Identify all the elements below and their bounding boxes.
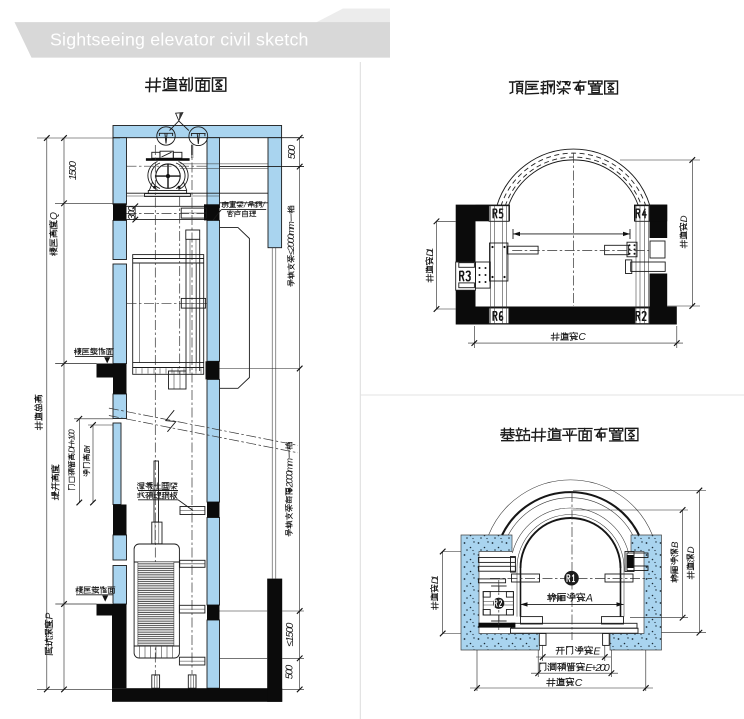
svg-text:Sightseeing elevator civil ske: Sightseeing elevator civil sketch [50, 30, 309, 50]
svg-text:500: 500 [287, 145, 298, 160]
svg-text:2000mm: 2000mm [284, 458, 294, 489]
svg-text:P: P [45, 612, 56, 619]
svg-text:B: B [670, 541, 681, 548]
svg-text:D: D [686, 546, 697, 553]
svg-text:D1: D1 [430, 575, 441, 584]
svg-text:D: D [679, 215, 690, 222]
svg-text:E: E [593, 645, 601, 657]
svg-text:/: / [262, 199, 267, 209]
svg-text:DH: DH [82, 445, 92, 454]
svg-text:≤2000mm: ≤2000mm [286, 221, 296, 255]
svg-text:E+200: E+200 [585, 662, 610, 674]
svg-text:500: 500 [285, 665, 296, 680]
svg-text:/: / [243, 199, 248, 209]
svg-text:300: 300 [127, 206, 138, 220]
svg-text:A: A [585, 592, 593, 604]
svg-text:≤1500: ≤1500 [285, 622, 296, 646]
svg-text:1500: 1500 [68, 161, 79, 180]
svg-text:DH+100: DH+100 [67, 429, 77, 453]
svg-text:Q: Q [49, 212, 60, 220]
svg-text:C: C [578, 332, 586, 343]
svg-text:D1: D1 [425, 248, 436, 257]
svg-text:C: C [575, 677, 583, 689]
